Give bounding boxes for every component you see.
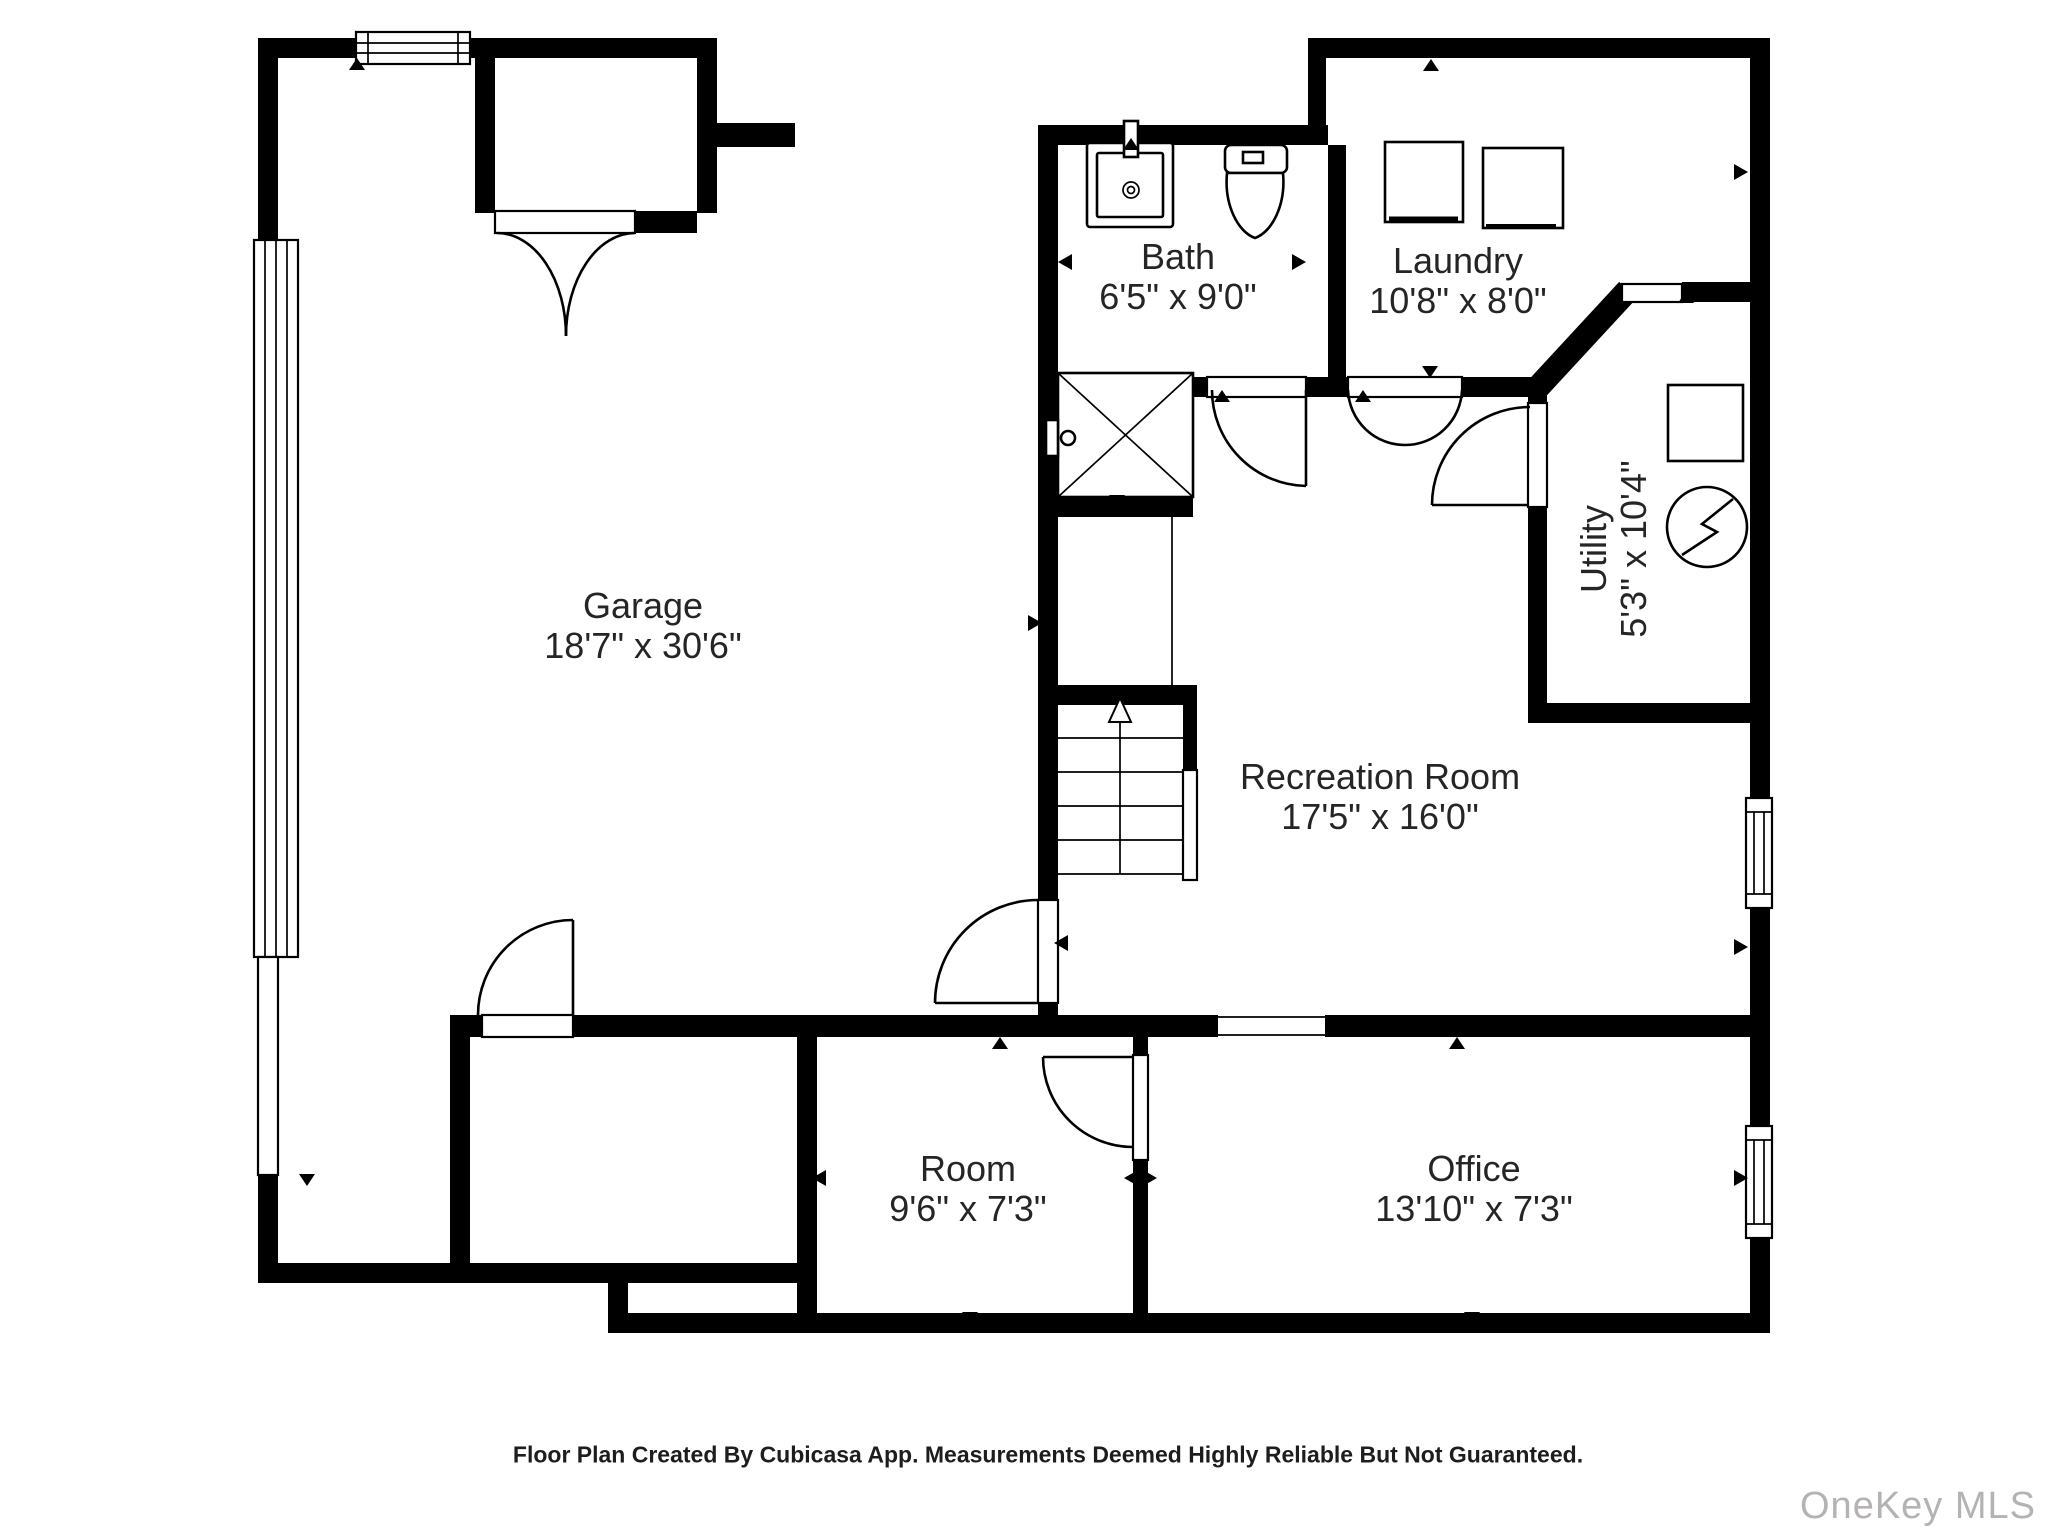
closet-double-door-icon: [495, 211, 635, 336]
recreation-office-opening: [1218, 1015, 1325, 1037]
garage-window-icon: [356, 32, 470, 64]
room-dimensions: 5'3" x 10'4": [1614, 460, 1654, 637]
room-dimensions: 9'6" x 7'3": [889, 1189, 1046, 1229]
laundry-double-door-icon: [1348, 377, 1462, 445]
garage-door-icon: [254, 240, 298, 1175]
room-dimensions: 13'10" x 7'3": [1375, 1189, 1572, 1229]
stair-opening: [1183, 770, 1197, 880]
watermark-onekey-mls: OneKey MLS: [1800, 1485, 2036, 1528]
room-label-utility: Utility 5'3" x 10'4": [1574, 460, 1654, 637]
room-label-bath: Bath 6'5" x 9'0": [1099, 237, 1256, 317]
room-name: Bath: [1099, 237, 1256, 277]
dryer-icon: [1483, 148, 1563, 228]
floor-plan-drawing: [0, 0, 2048, 1536]
room-label-laundry: Laundry 10'8" x 8'0": [1369, 241, 1546, 321]
room-dimensions: 10'8" x 8'0": [1369, 281, 1546, 321]
room-name: Recreation Room: [1240, 757, 1520, 797]
room-label-room: Room 9'6" x 7'3": [889, 1149, 1046, 1229]
toilet-icon: [1225, 145, 1287, 238]
floor-plan-page: Garage 18'7" x 30'6" Bath 6'5" x 9'0" La…: [0, 0, 2048, 1536]
room-name: Garage: [544, 586, 741, 626]
recreation-window-icon: [1746, 798, 1772, 908]
room-dimensions: 18'7" x 30'6": [544, 626, 741, 666]
footer-disclaimer: Floor Plan Created By Cubicasa App. Meas…: [513, 1442, 1583, 1469]
office-window-icon: [1746, 1126, 1772, 1238]
room-dimensions: 6'5" x 9'0": [1099, 277, 1256, 317]
room-name: Utility: [1574, 460, 1614, 637]
utility-door-icon: [1432, 403, 1547, 507]
walls: [258, 38, 1770, 1333]
room-name: Laundry: [1369, 241, 1546, 281]
water-heater-icon: [1668, 385, 1743, 461]
room-label-office: Office 13'10" x 7'3": [1375, 1149, 1572, 1229]
washer-icon: [1385, 142, 1463, 222]
room-door-icon: [1043, 1055, 1148, 1160]
electrical-panel-icon: [1667, 487, 1747, 567]
closet-door-icon: [478, 920, 573, 1037]
room-label-recreation-room: Recreation Room 17'5" x 16'0": [1240, 757, 1520, 837]
room-dimensions: 17'5" x 16'0": [1240, 797, 1520, 837]
room-label-garage: Garage 18'7" x 30'6": [544, 586, 741, 666]
shower-icon: [1046, 373, 1193, 497]
room-name: Office: [1375, 1149, 1572, 1189]
room-name: Room: [889, 1149, 1046, 1189]
hall-door-icon: [935, 900, 1058, 1003]
utility-opening: [1622, 284, 1682, 302]
